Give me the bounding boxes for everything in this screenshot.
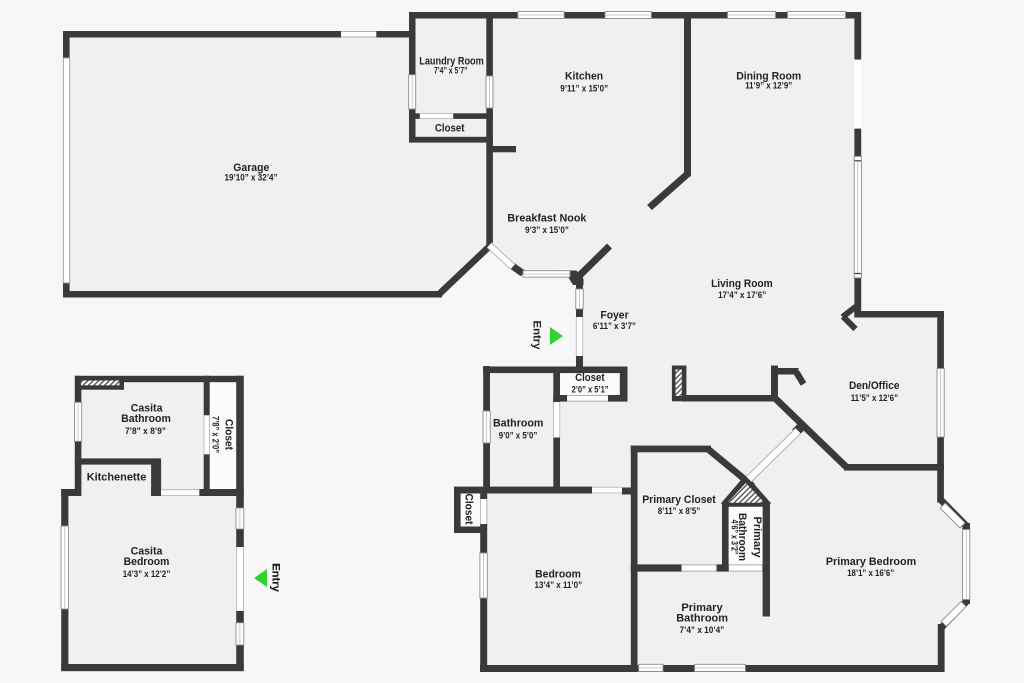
svg-text:Primary: Primary: [751, 517, 763, 559]
svg-text:Foyer: Foyer: [600, 309, 629, 321]
svg-text:17’4” x 17’6”: 17’4” x 17’6”: [718, 290, 766, 300]
svg-text:Breakfast Nook: Breakfast Nook: [507, 212, 587, 224]
svg-text:Living Room: Living Room: [711, 278, 773, 290]
svg-text:Bathroom: Bathroom: [493, 418, 544, 430]
svg-text:Closet: Closet: [223, 419, 235, 450]
svg-text:6’11” x 3’7”: 6’11” x 3’7”: [593, 321, 636, 331]
svg-text:Bathroom: Bathroom: [121, 413, 171, 425]
svg-text:Primary Closet: Primary Closet: [642, 494, 716, 506]
svg-text:7’8” x 2’0”: 7’8” x 2’0”: [211, 416, 221, 453]
svg-text:7’8” x 8’9”: 7’8” x 8’9”: [125, 426, 166, 436]
svg-text:11’5” x 12’6”: 11’5” x 12’6”: [851, 393, 898, 403]
svg-text:8’11” x 8’5”: 8’11” x 8’5”: [658, 506, 700, 516]
svg-text:14’3” x 12’2”: 14’3” x 12’2”: [123, 569, 171, 579]
svg-text:18’1” x 16’6”: 18’1” x 16’6”: [847, 568, 894, 578]
svg-text:Primary Bedroom: Primary Bedroom: [826, 556, 917, 568]
svg-text:13’4” x 11’0”: 13’4” x 11’0”: [535, 580, 583, 590]
svg-text:4’6” x 3’2”: 4’6” x 3’2”: [730, 520, 740, 555]
svg-text:9’0” x 5’0”: 9’0” x 5’0”: [499, 430, 538, 440]
svg-text:2’0” x 5’1”: 2’0” x 5’1”: [572, 385, 609, 395]
svg-text:Closet: Closet: [435, 123, 465, 135]
svg-text:Bedroom: Bedroom: [124, 556, 170, 568]
svg-text:11’9” x 12’9”: 11’9” x 12’9”: [745, 81, 792, 91]
svg-text:Bathroom: Bathroom: [676, 613, 728, 625]
svg-text:Den/Office: Den/Office: [849, 380, 900, 392]
svg-text:Bedroom: Bedroom: [535, 569, 581, 581]
svg-text:Entry: Entry: [270, 563, 282, 592]
svg-text:Closet: Closet: [463, 494, 475, 525]
svg-text:Kitchenette: Kitchenette: [87, 472, 147, 484]
svg-text:Kitchen: Kitchen: [565, 71, 603, 83]
svg-text:9’3” x 15’0”: 9’3” x 15’0”: [525, 225, 569, 235]
svg-text:7’4” x 10’4”: 7’4” x 10’4”: [680, 625, 725, 635]
svg-text:Closet: Closet: [575, 372, 605, 384]
svg-text:7’4” x 5’7”: 7’4” x 5’7”: [434, 66, 468, 76]
svg-text:Entry: Entry: [531, 321, 543, 351]
svg-text:19’10” x 32’4”: 19’10” x 32’4”: [225, 173, 278, 183]
svg-text:9’11” x 15’0”: 9’11” x 15’0”: [560, 83, 608, 93]
